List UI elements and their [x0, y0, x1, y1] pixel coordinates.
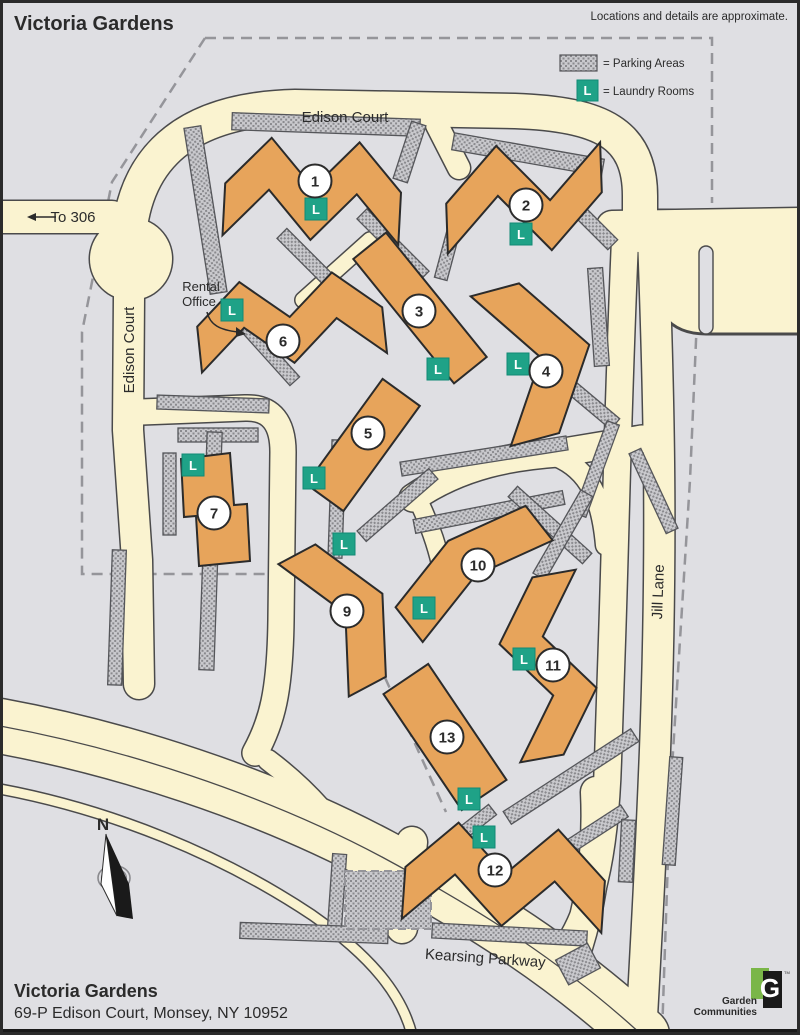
legend-laundry-symbol: L — [584, 83, 592, 98]
roundabout — [90, 218, 172, 300]
building-number-12: 12 — [487, 863, 504, 880]
legend-laundry-label: = Laundry Rooms — [603, 86, 694, 98]
road-top-right — [612, 223, 800, 226]
building-number-2: 2 — [522, 198, 530, 215]
legend-parking-swatch — [560, 55, 597, 71]
logo-text-line2: Communities — [694, 1007, 758, 1018]
logo-text-line1: Garden — [722, 996, 757, 1007]
junction-island — [699, 246, 713, 334]
building-number-6: 6 — [279, 334, 287, 351]
label-to-306: To 306 — [50, 209, 95, 226]
map-canvas: L1L2L3L4L5L6L7L9L10L11L12L13 Edison Cour… — [0, 0, 800, 1035]
laundry-letter-4: L — [514, 357, 522, 372]
road-jill-lane — [641, 237, 659, 1035]
compass-north-label: N — [97, 815, 109, 834]
laundry-letter-1: L — [312, 202, 320, 217]
laundry-letter-9: L — [340, 537, 348, 552]
page-title: Victoria Gardens — [14, 13, 174, 35]
laundry-letter-7: L — [189, 458, 197, 473]
logo-tm: TM — [784, 970, 790, 975]
rental-office-line1: Rental — [182, 279, 220, 294]
building-number-9: 9 — [343, 604, 351, 621]
building-number-4: 4 — [542, 364, 551, 381]
laundry-letter-5: L — [310, 471, 318, 486]
label-jill-lane: Jill Lane — [649, 564, 668, 620]
building-number-5: 5 — [364, 426, 372, 443]
footer-address: 69-P Edison Court, Monsey, NY 10952 — [14, 1005, 288, 1022]
logo-letter: G — [760, 973, 780, 1003]
building-number-1: 1 — [311, 174, 319, 191]
disclaimer: Locations and details are approximate. — [590, 11, 788, 23]
building-number-11: 11 — [545, 658, 561, 675]
building-number-3: 3 — [415, 304, 423, 321]
legend-parking-label: = Parking Areas — [603, 58, 685, 70]
building-number-13: 13 — [439, 730, 456, 747]
laundry-letter-12: L — [480, 830, 488, 845]
laundry-letter-11: L — [520, 652, 528, 667]
laundry-letter-3: L — [434, 362, 442, 377]
laundry-letter-13: L — [465, 792, 473, 807]
victoria-gardens-site-map: L1L2L3L4L5L6L7L9L10L11L12L13 Edison Cour… — [0, 0, 800, 1035]
parking-area-30 — [618, 820, 635, 883]
laundry-letter-6: L — [228, 303, 236, 318]
laundry-letter-2: L — [517, 227, 525, 242]
building-number-10: 10 — [470, 558, 487, 575]
label-edison-court-left: Edison Court — [121, 306, 138, 394]
building-number-7: 7 — [210, 506, 218, 523]
rental-office-line2: Office — [182, 294, 216, 309]
parking-area-15 — [163, 453, 176, 535]
parking-area-11 — [157, 395, 269, 413]
label-edison-court-top: Edison Court — [302, 109, 390, 126]
laundry-letter-10: L — [420, 601, 428, 616]
footer-name: Victoria Gardens — [14, 981, 158, 1001]
